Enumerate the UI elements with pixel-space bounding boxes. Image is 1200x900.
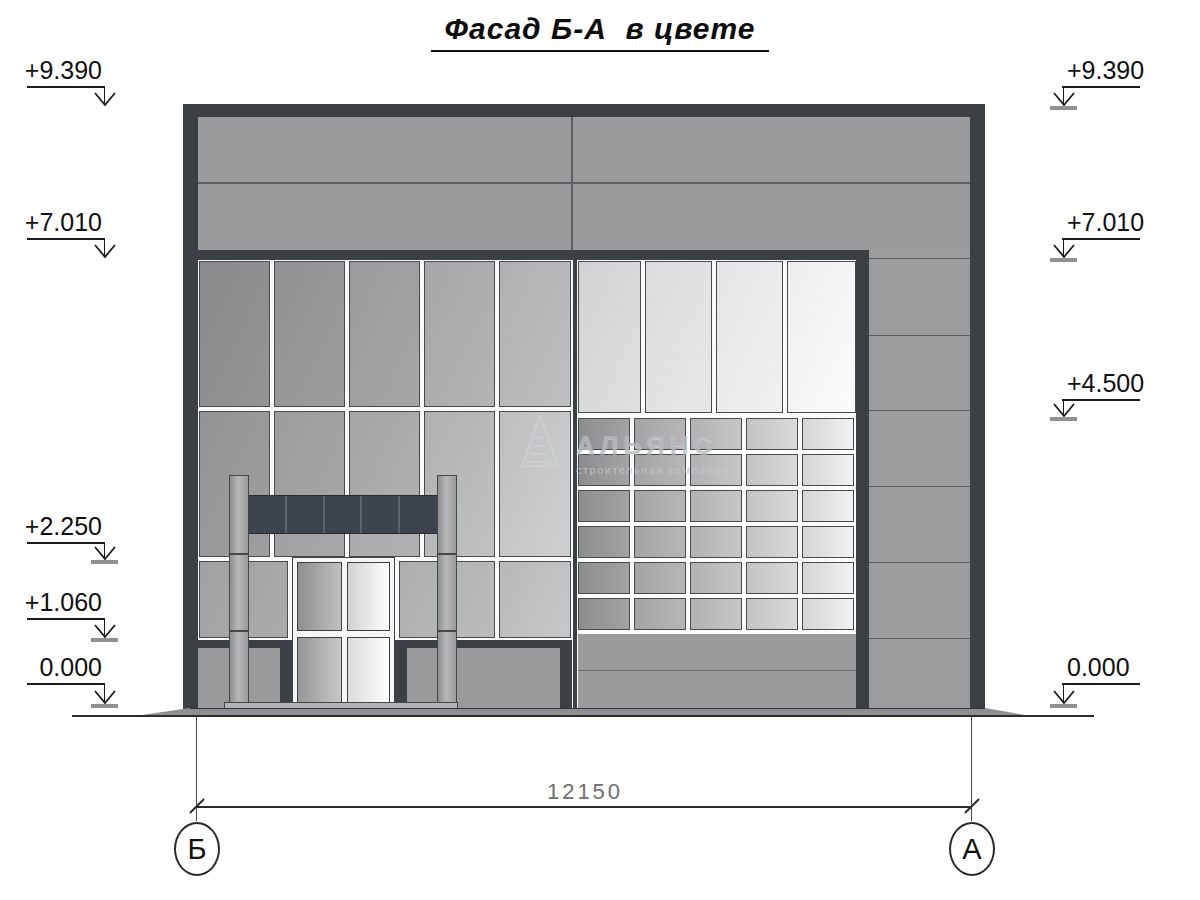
elevation-marker-line bbox=[27, 86, 105, 88]
elevation-marker-arrow-icon bbox=[94, 92, 116, 106]
elevation-marker-line bbox=[27, 618, 105, 620]
elevation-marker-arrow-icon bbox=[1053, 690, 1075, 704]
elevation-marker-label: +4.500 bbox=[1067, 369, 1157, 397]
elevation-marker-tick bbox=[1050, 704, 1077, 708]
elevation-marker-line bbox=[1062, 683, 1140, 685]
elevation-marker-arrow-icon bbox=[94, 546, 116, 560]
elevation-marker-arrow-icon bbox=[94, 624, 116, 638]
elevation-marker-arrow-icon bbox=[1053, 92, 1075, 106]
elevation-marker-label: +9.390 bbox=[1067, 56, 1157, 84]
elevation-marker-label: 0.000 bbox=[18, 653, 102, 681]
elevation-marker-line bbox=[27, 238, 105, 240]
elevation-marker-arrow-icon bbox=[94, 244, 116, 258]
dimension-line bbox=[197, 806, 972, 808]
axis-label-a: А bbox=[962, 833, 981, 866]
elevation-marker-tick bbox=[1050, 417, 1077, 421]
axis-label-b: Б bbox=[187, 833, 206, 866]
elevation-marker-line bbox=[1062, 238, 1140, 240]
elevation-marker-line bbox=[1062, 86, 1140, 88]
axis-bubble-b: Б bbox=[174, 822, 220, 876]
elevation-marker-label: +7.010 bbox=[18, 208, 102, 236]
elevation-marker-arrow-icon bbox=[1053, 403, 1075, 417]
elevation-marker-tick bbox=[91, 638, 118, 642]
elevation-marker-label: +9.390 bbox=[18, 56, 102, 84]
elevation-marker-line bbox=[1062, 399, 1140, 401]
elevation-marker-line bbox=[27, 683, 105, 685]
drawing-canvas: Фасад Б-А в цвете bbox=[0, 0, 1200, 900]
elevation-marker-label: +2.250 bbox=[18, 512, 102, 540]
dimension-value: 12150 bbox=[400, 779, 770, 805]
elevation-marker-line bbox=[27, 542, 105, 544]
elevation-marker-tick bbox=[1050, 106, 1077, 110]
elevation-marker-arrow-icon bbox=[94, 690, 116, 704]
elevation-marker-arrow-icon bbox=[1053, 244, 1075, 258]
elevation-marker-tick bbox=[1050, 258, 1077, 262]
elevation-marker-tick bbox=[91, 560, 118, 564]
elevation-marker-tick bbox=[91, 704, 118, 708]
elevation-marker-label: 0.000 bbox=[1067, 653, 1157, 681]
elevation-marker-label: +1.060 bbox=[18, 588, 102, 616]
axis-bubble-a: А bbox=[949, 822, 995, 876]
elevation-marker-label: +7.010 bbox=[1067, 208, 1157, 236]
elevation-markers-layer: +9.390+7.010+2.250+1.0600.000+9.390+7.01… bbox=[0, 0, 1200, 900]
